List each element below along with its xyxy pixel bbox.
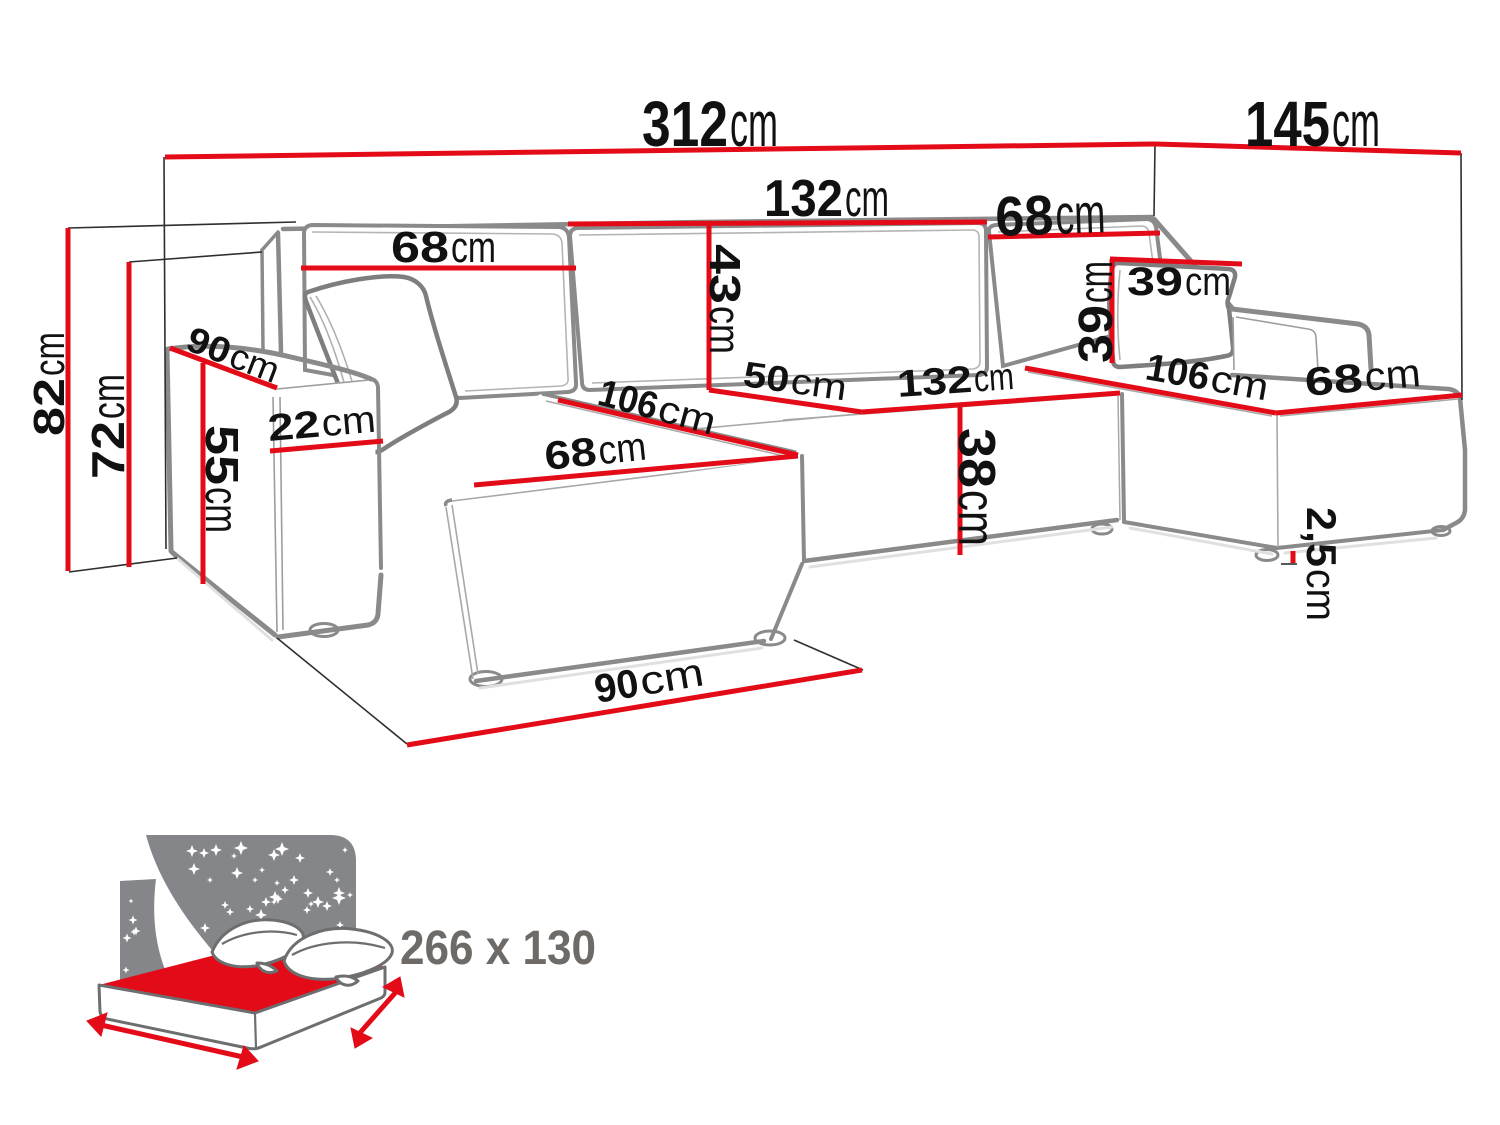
svg-text:72: 72 <box>82 421 134 479</box>
svg-text:50: 50 <box>741 353 792 400</box>
svg-text:cm: cm <box>700 306 749 354</box>
svg-text:132: 132 <box>896 359 974 406</box>
svg-text:cm: cm <box>82 374 134 419</box>
svg-text:cm: cm <box>451 223 496 272</box>
svg-text:22: 22 <box>266 404 321 450</box>
svg-text:132: 132 <box>764 170 843 228</box>
svg-text:cm: cm <box>320 399 377 446</box>
svg-text:cm: cm <box>196 487 248 533</box>
svg-text:266 x 130: 266 x 130 <box>400 922 596 975</box>
svg-text:145: 145 <box>1245 88 1330 160</box>
svg-text:39: 39 <box>1070 305 1123 363</box>
svg-text:cm: cm <box>25 332 74 376</box>
svg-text:cm: cm <box>1298 569 1345 621</box>
svg-text:68: 68 <box>1303 356 1365 405</box>
svg-text:cm: cm <box>788 360 849 408</box>
svg-text:cm: cm <box>1054 181 1106 246</box>
svg-text:68: 68 <box>542 430 598 479</box>
svg-text:2,5: 2,5 <box>1298 507 1345 567</box>
svg-text:90: 90 <box>591 661 642 712</box>
svg-text:cm: cm <box>1332 88 1380 160</box>
svg-text:55: 55 <box>196 425 248 485</box>
svg-text:cm: cm <box>1070 261 1123 303</box>
svg-text:43: 43 <box>700 244 749 304</box>
svg-text:39: 39 <box>1127 260 1183 304</box>
svg-text:cm: cm <box>1185 260 1231 304</box>
svg-text:68: 68 <box>994 183 1054 248</box>
svg-text:cm: cm <box>947 490 1005 546</box>
svg-text:cm: cm <box>845 170 889 228</box>
svg-text:68: 68 <box>391 223 449 272</box>
svg-text:cm: cm <box>1363 351 1423 400</box>
svg-text:cm: cm <box>596 425 648 474</box>
svg-text:312: 312 <box>642 88 728 160</box>
svg-text:cm: cm <box>973 356 1016 401</box>
svg-text:cm: cm <box>730 88 778 160</box>
svg-text:38: 38 <box>947 428 1005 488</box>
svg-text:82: 82 <box>25 378 74 436</box>
